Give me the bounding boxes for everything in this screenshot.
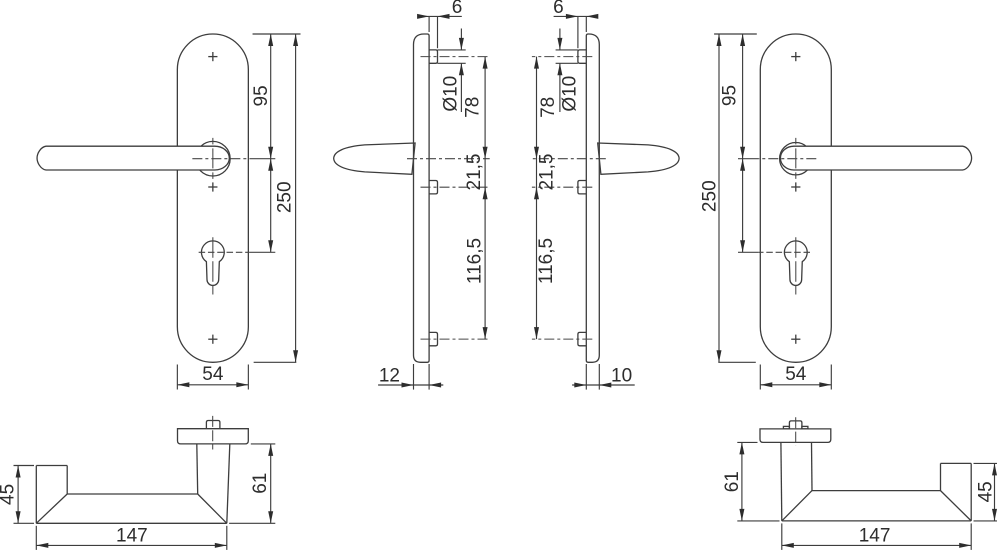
svg-text:6: 6 — [553, 0, 564, 18]
svg-text:21,5: 21,5 — [464, 154, 485, 191]
svg-text:54: 54 — [202, 364, 224, 385]
svg-text:78: 78 — [538, 97, 559, 118]
svg-text:Ø10: Ø10 — [560, 76, 581, 112]
svg-text:116,5: 116,5 — [464, 238, 485, 284]
svg-text:116,5: 116,5 — [536, 238, 557, 284]
svg-text:147: 147 — [859, 526, 891, 547]
svg-text:21,5: 21,5 — [537, 154, 558, 191]
svg-text:54: 54 — [785, 364, 807, 385]
svg-text:95: 95 — [251, 85, 272, 106]
svg-text:95: 95 — [720, 85, 741, 106]
svg-text:78: 78 — [463, 97, 484, 118]
svg-text:147: 147 — [116, 526, 148, 547]
svg-text:10: 10 — [611, 365, 632, 386]
svg-text:45: 45 — [0, 484, 19, 505]
svg-text:61: 61 — [250, 473, 271, 494]
svg-text:250: 250 — [275, 181, 296, 213]
svg-text:6: 6 — [452, 0, 463, 18]
svg-text:61: 61 — [722, 471, 743, 492]
svg-text:12: 12 — [379, 365, 400, 386]
svg-text:250: 250 — [699, 180, 720, 212]
svg-text:45: 45 — [975, 481, 996, 502]
svg-text:Ø10: Ø10 — [441, 76, 462, 112]
